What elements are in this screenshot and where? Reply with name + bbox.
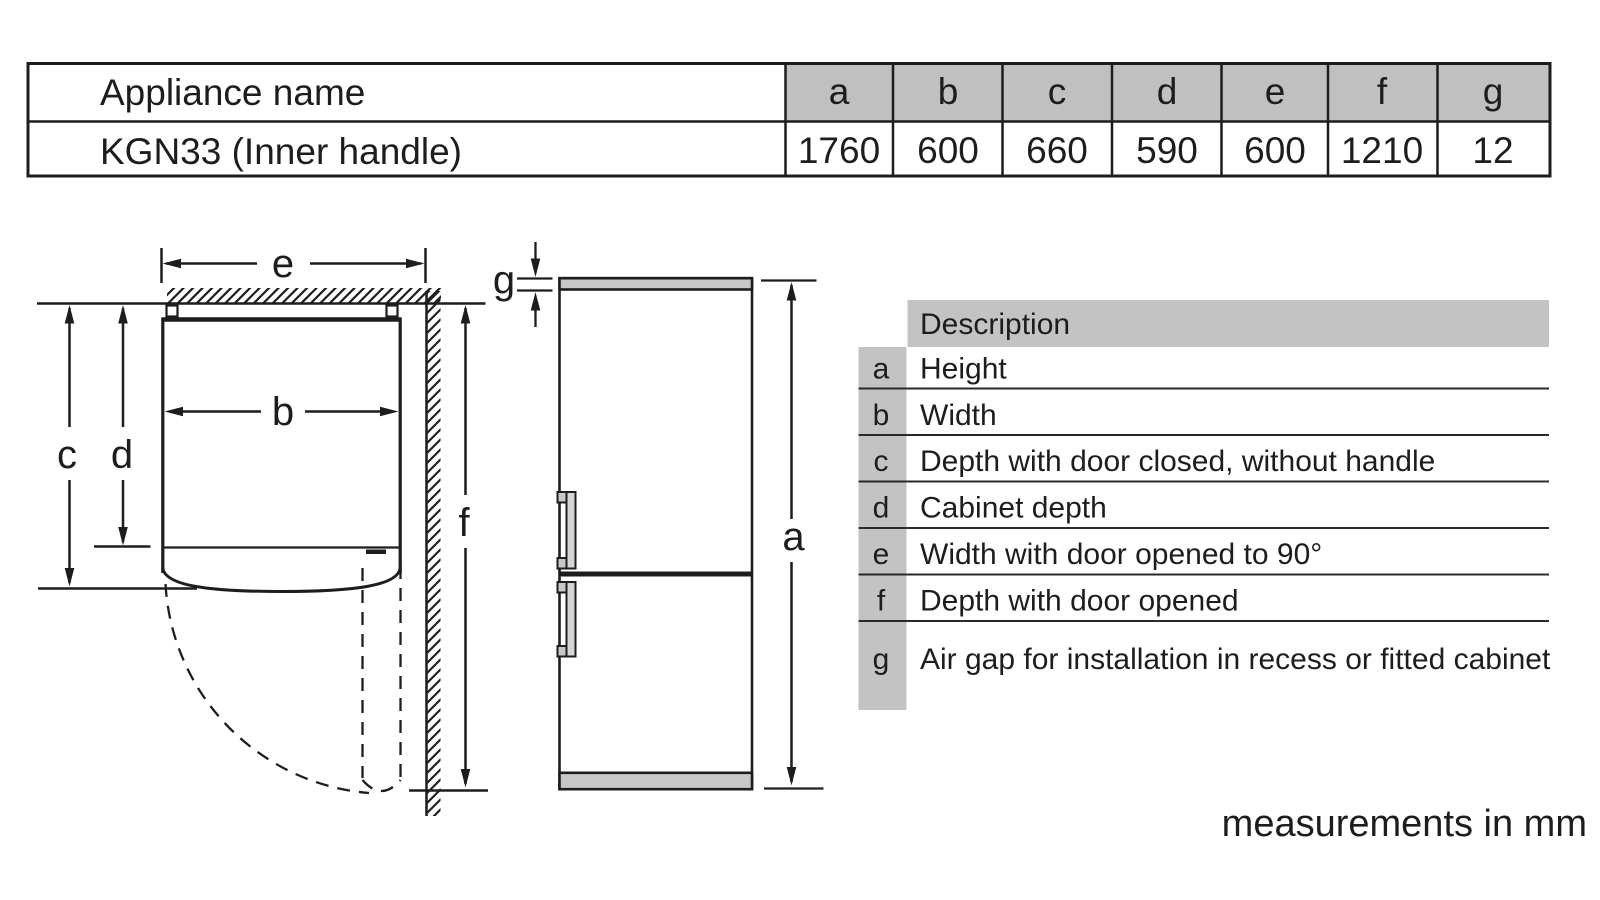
svg-text:590: 590 — [1136, 130, 1198, 171]
svg-text:a: a — [873, 353, 890, 386]
svg-text:d: d — [1157, 71, 1178, 112]
svg-text:g: g — [1483, 71, 1504, 112]
svg-text:d: d — [873, 492, 890, 525]
svg-text:Depth with door closed, withou: Depth with door closed, without handle — [920, 445, 1435, 478]
svg-text:Depth with door opened: Depth with door opened — [920, 585, 1239, 618]
svg-text:c: c — [874, 445, 889, 478]
svg-text:600: 600 — [917, 130, 979, 171]
svg-text:660: 660 — [1026, 130, 1088, 171]
svg-text:600: 600 — [1244, 130, 1306, 171]
svg-text:f: f — [458, 501, 470, 545]
svg-text:Width with door opened to 90°: Width with door opened to 90° — [920, 538, 1322, 571]
svg-text:f: f — [1377, 71, 1388, 112]
svg-text:d: d — [111, 433, 133, 477]
svg-text:a: a — [829, 71, 850, 112]
svg-text:g: g — [873, 643, 890, 676]
svg-text:b: b — [938, 71, 959, 112]
svg-text:Width: Width — [920, 399, 997, 432]
svg-text:1760: 1760 — [798, 130, 880, 171]
svg-text:Appliance name: Appliance name — [100, 72, 365, 113]
svg-text:Description: Description — [920, 308, 1070, 341]
svg-text:e: e — [272, 242, 294, 286]
svg-text:measurements in mm: measurements in mm — [1222, 803, 1587, 845]
svg-text:g: g — [493, 258, 515, 302]
svg-text:f: f — [877, 585, 886, 618]
svg-text:c: c — [57, 433, 77, 477]
svg-text:b: b — [873, 399, 890, 432]
svg-text:KGN33 (Inner handle): KGN33 (Inner handle) — [100, 131, 462, 172]
svg-text:1210: 1210 — [1341, 130, 1423, 171]
svg-text:c: c — [1048, 71, 1067, 112]
svg-text:Height: Height — [920, 353, 1007, 386]
svg-text:Cabinet depth: Cabinet depth — [920, 492, 1107, 525]
svg-text:b: b — [272, 390, 294, 434]
svg-text:a: a — [782, 515, 805, 559]
svg-text:e: e — [873, 538, 890, 571]
svg-text:Air gap for installation in re: Air gap for installation in recess or fi… — [920, 643, 1551, 676]
svg-text:12: 12 — [1472, 130, 1513, 171]
svg-text:e: e — [1265, 71, 1286, 112]
